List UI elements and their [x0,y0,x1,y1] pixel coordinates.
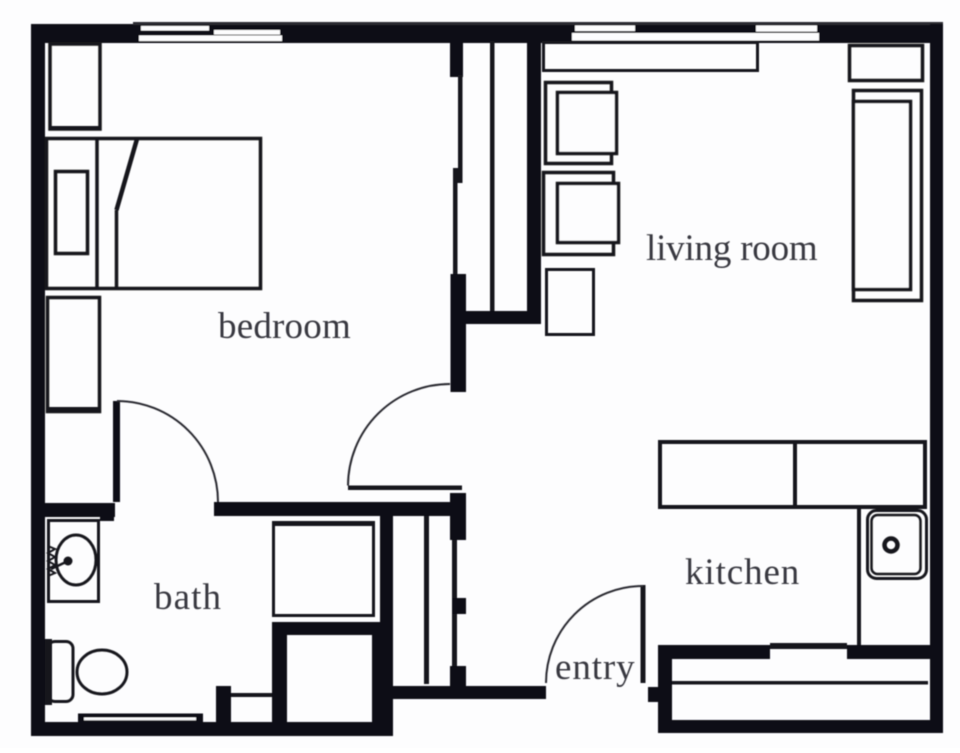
svg-text:living room: living room [646,228,818,269]
svg-text:entry: entry [555,647,636,688]
svg-text:kitchen: kitchen [685,552,800,593]
svg-text:bath: bath [154,577,222,618]
svg-text:bedroom: bedroom [218,306,351,347]
